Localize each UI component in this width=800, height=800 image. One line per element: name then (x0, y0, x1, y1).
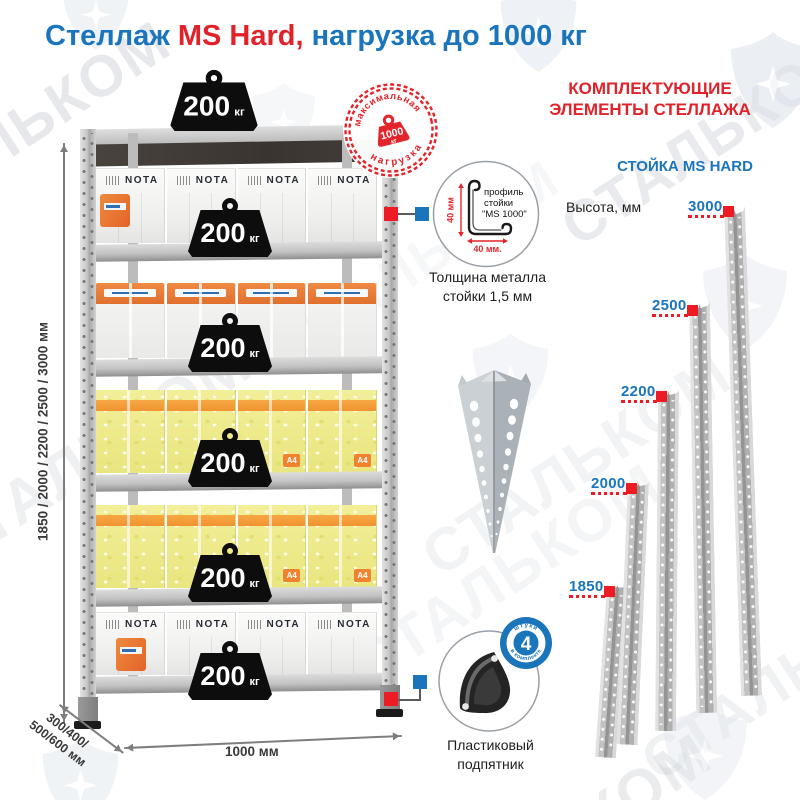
nota-brand-label: NOTA (196, 619, 230, 630)
dotted-leader-line (591, 492, 627, 495)
plastic-foot-caption: Пластиковый подпятник (408, 736, 573, 774)
weight-unit: кг (249, 676, 259, 688)
nota-brand-label: NOTA (267, 619, 301, 630)
svg-text:стойки: стойки (484, 198, 513, 209)
weight-value: 200 (200, 450, 245, 477)
weight-body: 200кг (188, 555, 272, 602)
nota-brand-label: NOTA (196, 175, 230, 186)
a4-label: A4 (354, 569, 371, 582)
post-top-marker (604, 586, 615, 597)
title-part-2: MS Hard, (178, 20, 304, 52)
shelf-load-weight-icon: 200кг (188, 313, 272, 372)
box-strap (339, 505, 342, 588)
product-box-orange-lid (308, 283, 377, 358)
barcode-icon (248, 176, 262, 185)
weight-value: 200 (183, 93, 230, 121)
box-strap (127, 390, 130, 473)
barcode-icon (248, 620, 262, 629)
dotted-leader-line (569, 595, 605, 598)
box-crease (141, 193, 142, 243)
box-strap (129, 283, 132, 358)
box-crease (353, 193, 354, 243)
nota-box-top: NOTA (96, 613, 164, 630)
quantity-badge: штуки в комплекте 4 (499, 616, 553, 675)
shelf-load-weight-icon: 200кг (188, 641, 272, 700)
barcode-icon (106, 620, 120, 629)
post-height-value: 2500 (652, 297, 687, 314)
weight-unit: кг (249, 348, 259, 360)
post-top-marker (723, 206, 734, 217)
nota-box-top: NOTA (308, 613, 376, 630)
post-top-marker (687, 305, 698, 316)
post-height-label-group: 3000 (688, 198, 723, 216)
paper-pack-yellow (96, 390, 165, 473)
dotted-leader-line (621, 400, 657, 403)
post-top-marker (656, 391, 667, 402)
nota-box-top: NOTA (238, 169, 306, 186)
dotted-leader-line (688, 215, 724, 218)
product-box-orange-lid (96, 283, 165, 358)
barcode-icon (177, 176, 191, 185)
shelving-rack-illustration: NOTANOTANOTANOTA200кг200кгA4A4A4200кгA4A… (70, 113, 402, 735)
weight-unit: кг (249, 233, 259, 245)
box-strap (341, 283, 344, 358)
weight-value: 200 (200, 663, 245, 690)
stand-subheading: СТОЙКА MS HARD (615, 158, 755, 175)
box-strap (127, 505, 130, 588)
badge-number: 4 (521, 634, 532, 655)
rack-front-post-left (80, 129, 96, 721)
profile-callout-red-marker (384, 207, 398, 221)
paper-pack-yellow (96, 505, 165, 588)
barcode-icon (177, 620, 191, 629)
profile-dim-horizontal: 40 мм. (473, 244, 501, 254)
box-crease (353, 637, 354, 675)
shelf-load-weight-icon: 200кг (188, 198, 272, 257)
nota-brand-label: NOTA (337, 619, 371, 630)
box-crease (282, 193, 283, 243)
weight-value: 200 (200, 335, 245, 362)
barcode-icon (318, 176, 332, 185)
post-height-value: 2000 (591, 475, 626, 492)
paper-pack-yellow: A4 (308, 505, 377, 588)
weight-value: 200 (200, 565, 245, 592)
nota-brand-label: NOTA (267, 175, 301, 186)
barcode-icon (106, 176, 120, 185)
product-box-nota: NOTA (308, 612, 377, 675)
width-dimension-label: 1000 мм (225, 744, 279, 759)
title-part-3: нагрузка до 1000 кг (304, 20, 587, 52)
barcode-icon (318, 620, 332, 629)
a4-label: A4 (283, 454, 300, 467)
nota-box-top: NOTA (167, 613, 235, 630)
weight-unit: кг (249, 463, 259, 475)
shelf-load-weight-icon: 200кг (188, 543, 272, 602)
weight-body: 200кг (188, 440, 272, 487)
corner-post-perspective-icon (448, 362, 540, 565)
post-height-value: 3000 (688, 198, 723, 215)
title-part-1: Стеллаж (45, 20, 178, 52)
nota-box-top: NOTA (96, 169, 164, 186)
shelf-load-weight-icon: 200кг (170, 70, 257, 131)
weight-body: 200кг (188, 325, 272, 372)
nota-box-top: NOTA (167, 169, 235, 186)
svg-text:"MS 1000": "MS 1000" (482, 209, 527, 220)
box-strap (339, 390, 342, 473)
post-height-label-group: 1850 (569, 578, 604, 596)
height-dimension-line (63, 143, 65, 723)
paper-pack-yellow: A4 (308, 390, 377, 473)
box-crease (282, 637, 283, 675)
height-dimension-label: 1850 / 2000 / 2200 / 2500 / 3000 мм (36, 152, 51, 712)
nota-side-sticker (100, 194, 130, 227)
nota-brand-label: NOTA (125, 619, 159, 630)
post-height-label-group: 2000 (591, 475, 626, 493)
dotted-leader-line (652, 314, 688, 317)
nota-box-top: NOTA (238, 613, 306, 630)
post-height-value: 1850 (569, 578, 604, 595)
height-axis-label: Высота, мм (566, 199, 641, 215)
nota-brand-label: NOTA (125, 175, 159, 186)
weight-body: 200кг (170, 82, 257, 131)
profile-dim-vertical: 40 мм (446, 197, 456, 223)
post-profile-detail: 40 мм 40 мм. профиль стойки "MS 1000" (431, 159, 541, 274)
a4-label: A4 (283, 569, 300, 582)
shelf-load-weight-icon: 200кг (188, 428, 272, 487)
weight-body: 200кг (188, 653, 272, 700)
nota-side-sticker (116, 638, 146, 671)
post-height-label-group: 2200 (621, 383, 656, 401)
weight-body: 200кг (188, 210, 272, 257)
a4-label: A4 (354, 454, 371, 467)
box-crease (331, 193, 332, 243)
page-title: Стеллаж MS Hard, нагрузка до 1000 кг (45, 20, 587, 53)
post-height-value: 2200 (621, 383, 656, 400)
profile-callout-blue-marker (415, 207, 429, 221)
weight-unit: кг (234, 106, 244, 118)
components-heading: КОМПЛЕКТУЮЩИЕ ЭЛЕМЕНТЫ СТЕЛЛАЖА (540, 78, 760, 121)
post-top-marker (626, 483, 637, 494)
box-crease (331, 637, 332, 675)
svg-text:профиль: профиль (484, 187, 523, 198)
stand-post-2200 (655, 390, 679, 731)
foot-callout-blue-marker (413, 675, 427, 689)
rack-front-post-right (382, 143, 398, 705)
foot-callout-red-marker (384, 692, 398, 706)
foot-callout-line-h (398, 699, 420, 701)
weight-unit: кг (249, 578, 259, 590)
post-height-label-group: 2500 (652, 297, 687, 315)
rack-foot-pad-right (376, 709, 403, 717)
foot-callout-line-v (419, 688, 421, 701)
weight-value: 200 (200, 220, 245, 247)
